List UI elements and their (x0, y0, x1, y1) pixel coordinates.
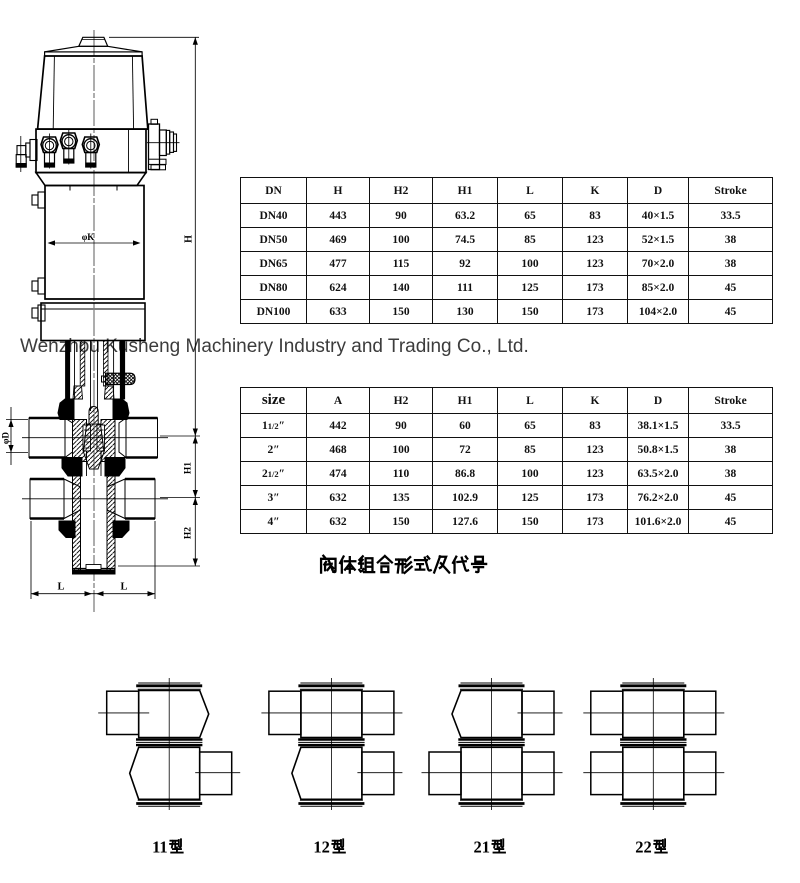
svg-text:22: 22 (635, 838, 652, 857)
svg-text:H1: H1 (184, 462, 194, 474)
svg-text:21: 21 (474, 838, 491, 857)
svg-text:12: 12 (313, 838, 330, 857)
svg-text:φK: φK (82, 232, 95, 242)
svg-text:H2: H2 (184, 527, 194, 539)
svg-text:L: L (57, 582, 64, 593)
svg-text:L: L (120, 582, 127, 593)
svg-text:11: 11 (152, 838, 168, 857)
svg-text:φD: φD (1, 431, 11, 444)
svg-text:H: H (184, 235, 195, 243)
